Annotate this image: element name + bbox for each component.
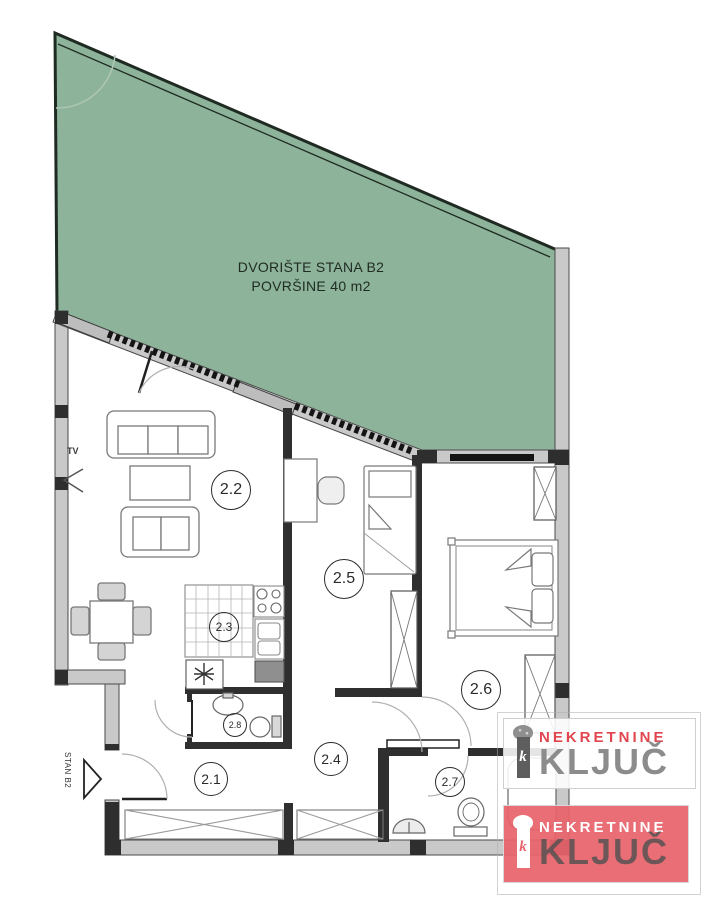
courtyard-label: DVORIŠTE STANA B2 POVRŠINE 40 m2: [186, 258, 436, 296]
watermark-red: k NEKRETNINE KLJUČ: [503, 805, 689, 883]
room-label-2-8: 2.8: [223, 713, 247, 737]
room-label-2-1: 2.1: [194, 762, 228, 796]
courtyard-area: [55, 33, 557, 452]
room-label-2-3: 2.3: [209, 612, 239, 642]
watermark-text: NEKRETNINE KLJUČ: [539, 820, 669, 868]
room-label-2-2: 2.2: [211, 470, 251, 510]
entrance-label: STAN B2: [63, 752, 72, 802]
key-stem: k: [517, 827, 530, 868]
tv-label: TV: [67, 446, 79, 456]
key-icon: k: [510, 725, 536, 783]
watermark-light: k NEKRETNINE KLJUČ: [503, 718, 696, 789]
courtyard-label-line1: DVORIŠTE STANA B2: [186, 258, 436, 277]
wc-fixtures: [213, 693, 281, 737]
key-stem: k: [517, 737, 530, 778]
watermark-text: NEKRETNINE KLJUČ: [539, 730, 669, 778]
room-label-2-7: 2.7: [435, 767, 465, 797]
room-label-2-5: 2.5: [324, 559, 364, 599]
hall-wardrobes: [125, 810, 383, 839]
entrance-arrow-icon: [84, 760, 101, 798]
key-icon: k: [510, 815, 536, 873]
key-letter: k: [519, 839, 527, 856]
floorplan-canvas: DVORIŠTE STANA B2 POVRŠINE 40 m2 2.1 2.2…: [0, 0, 708, 900]
room-label-2-4: 2.4: [314, 742, 348, 776]
brand-name-bottom: KLJUČ: [539, 746, 669, 778]
room-label-2-6: 2.6: [461, 670, 501, 710]
hall-cabinet: [387, 740, 459, 748]
brand-name-bottom: KLJUČ: [539, 836, 669, 868]
key-letter: k: [519, 749, 527, 766]
courtyard-label-line2: POVRŠINE 40 m2: [186, 277, 436, 296]
